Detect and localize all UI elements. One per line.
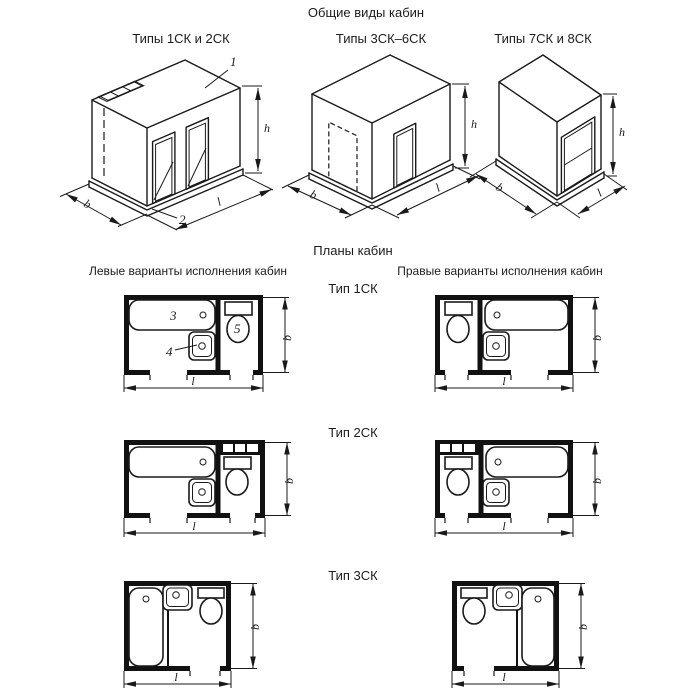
height-dimension: h: [242, 86, 270, 173]
isometric-view-1sk-2sk: 1 2 h b l: [50, 48, 285, 243]
width-label: b: [576, 624, 590, 630]
right-variants-header: Правые варианты исполнения кабин: [397, 264, 603, 278]
isometric-view-3sk-6sk: h b l: [280, 48, 490, 233]
washbasin: [163, 585, 192, 610]
length-label: l: [191, 374, 195, 388]
type-3sk-label: Тип 3СК: [328, 568, 377, 583]
type-1sk-label: Тип 1СК: [328, 281, 377, 296]
door-opening: [561, 117, 594, 194]
callout-2-text: 2: [179, 212, 186, 227]
plan-2sk-left: b l: [112, 435, 302, 540]
isometric-view-7sk-8sk: h b l: [465, 48, 665, 233]
callout-4-text: 4: [166, 344, 173, 359]
callout-1-cabin: 1: [205, 54, 237, 88]
washbasin: [189, 479, 215, 506]
height-label: h: [264, 121, 270, 135]
width-dimension: b: [263, 298, 294, 373]
callout-5-text: 5: [234, 321, 241, 336]
length-label: l: [502, 670, 506, 684]
length-label: l: [433, 180, 443, 194]
bathtub: [486, 447, 568, 477]
length-dimension: l: [124, 518, 265, 537]
door-opening: [394, 123, 416, 188]
plan-3sk-left: b l: [112, 575, 277, 695]
cabin-box: [496, 55, 604, 206]
length-dimension: l: [435, 374, 573, 392]
view-label-1sk-2sk: Типы 1СК и 2СК: [132, 31, 230, 46]
length-dimension: l: [435, 518, 573, 537]
vent-shelf: [437, 440, 479, 455]
bathtub: [485, 300, 568, 330]
plans-title: Планы кабин: [313, 243, 392, 258]
toilet: [198, 588, 224, 624]
callout-3-text: 3: [169, 308, 177, 323]
length-dimension: l: [124, 374, 263, 392]
plan-1sk-left: 3 4 5 b l: [112, 290, 302, 395]
drawing-sheet: Общие виды кабин Типы 1СК и 2СК Типы 3СК…: [0, 0, 700, 700]
length-label: l: [502, 519, 506, 533]
length-dimension: l: [557, 174, 627, 218]
length-label: l: [215, 194, 224, 208]
width-dimension: b: [470, 161, 557, 218]
width-label: b: [248, 624, 262, 630]
hidden-door-dashed: [329, 122, 357, 192]
toilet: [224, 457, 251, 495]
length-label: l: [502, 374, 506, 388]
type-2sk-label: Тип 2СК: [328, 425, 377, 440]
view-label-3sk-6sk: Типы 3СК–6СК: [336, 31, 426, 46]
callout-1-text: 1: [230, 54, 237, 69]
roof-vent-grille: [98, 81, 144, 101]
width-label: b: [280, 335, 294, 341]
length-label: l: [192, 519, 196, 533]
plan-2sk-right: b l: [423, 435, 613, 540]
cabin-box: [309, 55, 453, 209]
door-opening-2: [186, 118, 208, 190]
washbasin: [493, 585, 522, 610]
length-label: l: [594, 186, 605, 200]
toilet: [461, 588, 487, 624]
height-dimension: h: [603, 94, 625, 176]
length-dimension: l: [124, 670, 231, 688]
bathtub: [522, 588, 554, 666]
width-dimension: b: [573, 443, 604, 516]
bathtub: [129, 447, 215, 477]
width-label: b: [282, 478, 296, 484]
width-dimension: b: [573, 298, 604, 373]
left-variants-header: Левые варианты исполнения кабин: [89, 264, 287, 278]
bathtub: [129, 588, 163, 666]
height-label: h: [619, 125, 625, 139]
length-dimension: l: [372, 166, 480, 218]
plan-3sk-right: b l: [438, 575, 603, 695]
door-opening-1: [153, 132, 175, 204]
width-dimension: b: [60, 184, 147, 227]
length-label: l: [174, 670, 178, 684]
plan-1sk-right: b l: [423, 290, 613, 395]
width-label: b: [590, 478, 604, 484]
toilet: [445, 457, 472, 495]
toilet: [445, 302, 472, 343]
width-label: b: [82, 196, 94, 211]
width-dimension: b: [559, 584, 590, 669]
page-title: Общие виды кабин: [308, 5, 424, 20]
washbasin: [483, 479, 509, 506]
view-label-7sk-8sk: Типы 7СК и 8СК: [494, 31, 592, 46]
length-dimension: l: [452, 670, 559, 688]
washbasin: [483, 332, 509, 360]
cabin-box: [89, 60, 243, 216]
width-dimension: b: [265, 443, 296, 516]
width-dimension: b: [231, 584, 262, 669]
vent-shelf: [221, 440, 261, 455]
width-label: b: [590, 335, 604, 341]
